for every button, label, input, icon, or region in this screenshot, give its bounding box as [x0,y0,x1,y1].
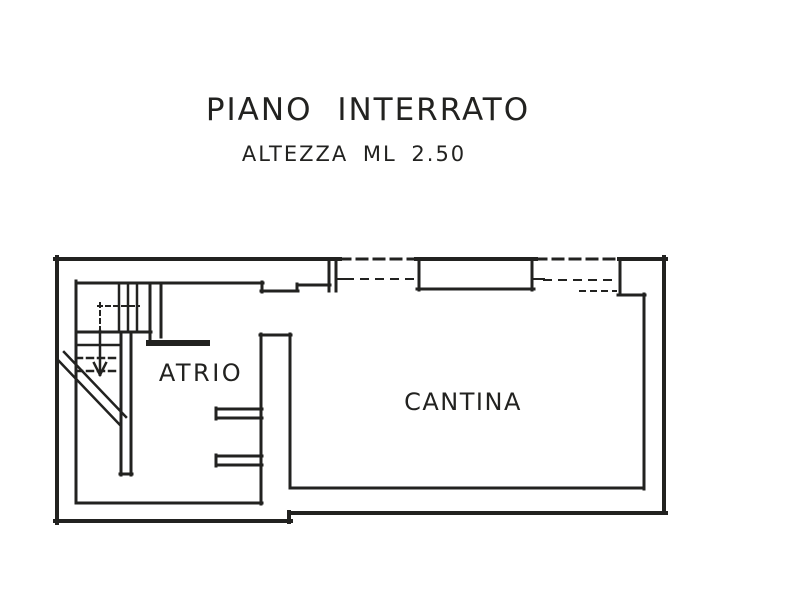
stair-break-line-1 [64,352,126,417]
walls-layer [55,257,666,523]
floor-plan: ATRIOCANTINA [0,0,800,603]
room-label-cantina: CANTINA [404,388,522,416]
labels-layer: ATRIOCANTINA [159,359,522,416]
scanned-floor-plan-page: PIANO INTERRATO ALTEZZA ML 2.50 ATRIOCAN… [0,0,800,603]
room-label-atrio: ATRIO [159,359,243,387]
